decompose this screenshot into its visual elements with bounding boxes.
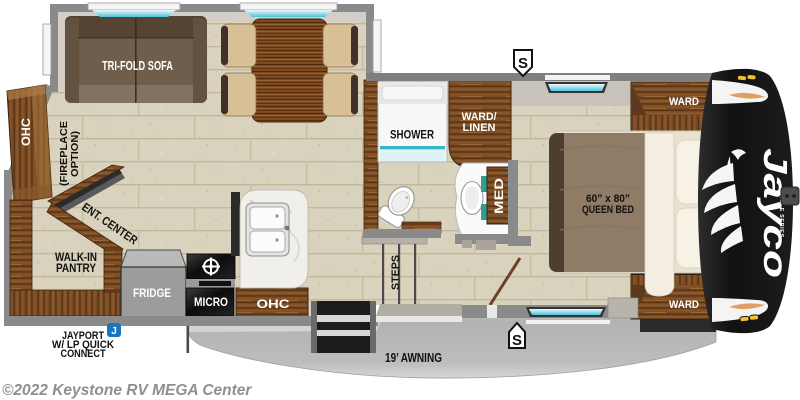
svg-text:PANTRY: PANTRY: [56, 263, 96, 275]
svg-text:QUEEN BED: QUEEN BED: [582, 204, 634, 216]
svg-text:J: J: [111, 326, 117, 337]
svg-text:SHOWER: SHOWER: [390, 128, 434, 142]
svg-text:19’ AWNING: 19’ AWNING: [385, 350, 442, 365]
svg-text:©2022 Keystone RV MEGA Center: ©2022 Keystone RV MEGA Center: [2, 382, 252, 399]
svg-text:S: S: [512, 332, 522, 349]
svg-text:S: S: [518, 55, 528, 72]
svg-text:Jayco: Jayco: [757, 148, 794, 278]
svg-text:FRIDGE: FRIDGE: [133, 288, 171, 300]
svg-text:WARD: WARD: [669, 299, 699, 311]
svg-text:WARD: WARD: [669, 96, 699, 108]
svg-text:TRI-FOLD SOFA: TRI-FOLD SOFA: [102, 59, 173, 73]
svg-text:OHC: OHC: [19, 118, 33, 146]
svg-text:CONNECT: CONNECT: [61, 348, 106, 360]
svg-text:STEPS: STEPS: [390, 255, 402, 290]
svg-text:OHC: OHC: [257, 299, 290, 311]
svg-text:MED: MED: [494, 178, 506, 214]
svg-text:OPTION): OPTION): [69, 131, 81, 177]
svg-text:MICRO: MICRO: [194, 297, 228, 309]
svg-text:LINEN: LINEN: [463, 122, 496, 134]
